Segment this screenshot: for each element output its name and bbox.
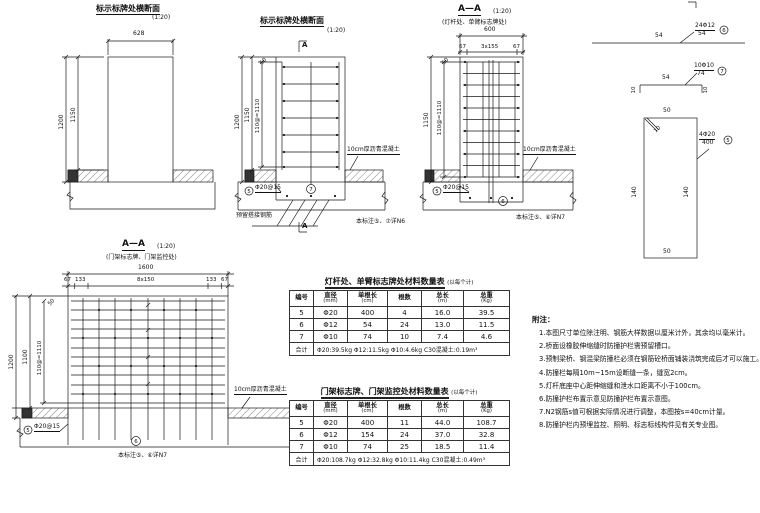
- callout-detail-n6: 6: [722, 28, 726, 34]
- col-header: 总重(Kg): [464, 291, 510, 307]
- d1-height-inner-dim: 1150: [71, 107, 78, 122]
- callout-bar6-d3: 6: [501, 199, 505, 205]
- d2-bar-spacing-dim: 110@=1110: [255, 99, 261, 134]
- cell: 6: [290, 429, 314, 441]
- n6-callout: 24Φ12 54: [695, 23, 715, 38]
- note-item: 3.预制梁桥、钢混梁防撞栏必须在钢筋砼桥面铺装浇筑完成后才可以施工。: [532, 353, 760, 366]
- cell: Φ12: [314, 429, 348, 441]
- table-unit-note: (以每个计): [451, 390, 477, 396]
- cell: 25: [388, 441, 422, 453]
- d4-ref-note: 本标注⑤、⑥详N7: [118, 453, 167, 460]
- table-row: 7Φ1074107.44.6: [290, 331, 510, 343]
- callout-bar6-d4: 6: [134, 439, 138, 445]
- n7-length-dim: 54: [662, 75, 670, 82]
- note-item: 5.灯杆底座中心距伸缩缝和泄水口距离不小于100cm。: [532, 380, 760, 393]
- cell: 13.0: [422, 319, 464, 331]
- footer-label: 合计: [290, 453, 314, 466]
- table-footer-row: 合计 Φ20:108.7kg Φ12:32.8kg Φ10:11.4kg C30…: [290, 453, 510, 466]
- callout-detail-n7: 7: [720, 69, 724, 75]
- qty-table-gantry: 门架标志牌、门架监控处材料数量表 (以每个计) 编号 直径(mm) 单根长(cm…: [289, 386, 509, 466]
- cell: 24: [388, 429, 422, 441]
- d1-width-dim: 628: [133, 31, 144, 38]
- d4-scale: (1:20): [157, 244, 175, 251]
- cell: 11.4: [464, 441, 510, 453]
- cell: Φ12: [314, 319, 348, 331]
- table-row: 6Φ121542437.032.8: [290, 429, 510, 441]
- d3-subtitle: (灯杆处、单臂标志牌处): [442, 20, 507, 27]
- n6-callout-bottom: 54: [695, 31, 715, 38]
- d3-scale: (1:20): [493, 9, 511, 16]
- col-header: 直径(mm): [314, 401, 348, 417]
- cell: 74: [348, 331, 388, 343]
- d1-title: 标示标牌处横断面: [96, 5, 160, 15]
- table-title: 门架标志牌、门架监控处材料数量表: [321, 387, 449, 399]
- d4-seg1-dim: 67: [64, 277, 71, 283]
- cell: 39.5: [464, 307, 510, 319]
- cell: Φ10: [314, 441, 348, 453]
- cell: 11: [388, 417, 422, 429]
- cell: 10: [388, 331, 422, 343]
- cell: 5: [290, 417, 314, 429]
- n5-right-dim: 140: [684, 186, 691, 197]
- col-header: 总长(m): [422, 291, 464, 307]
- d3-seg-mid-dim: 3x155: [481, 44, 498, 50]
- d2-section-mark-bottom: A: [302, 223, 307, 231]
- cell: Φ10: [314, 331, 348, 343]
- d4-subtitle: (门架标志牌、门架监控处): [106, 255, 177, 262]
- d1-scale: (1:20): [152, 15, 170, 22]
- drawing-sheet: 5 7 5 6 5 6 6 7 5 标示标牌处横断面 (1:20) 628 12…: [0, 0, 760, 513]
- note-item: 2.桥面设橡胶伸缩缝时防撞护栏需预留槽口。: [532, 340, 760, 353]
- note-item: 8.防撞护栏内预埋监控、照明、标志标线构件见有关专业图。: [532, 419, 760, 432]
- cell: 7.4: [422, 331, 464, 343]
- d3-pavement-label: 10cm厚沥青混凝土: [523, 147, 576, 155]
- d4-bar-spacing-dim: 110@=1110: [37, 341, 43, 376]
- d3-seg-right-dim: 67: [513, 44, 520, 50]
- n7-callout: 10Φ10 74: [694, 63, 714, 78]
- n7-hook-left-dim: 10: [631, 87, 637, 94]
- d4-rebar-label: Φ20@15: [34, 424, 60, 432]
- cell: Φ20: [314, 307, 348, 319]
- cell: 4.6: [464, 331, 510, 343]
- col-header: 总重(Kg): [464, 401, 510, 417]
- col-header: 根数: [388, 401, 422, 417]
- d4-seg2-dim: 133: [75, 277, 86, 283]
- table-unit-note: (以每个计): [447, 280, 473, 286]
- cell: 154: [348, 429, 388, 441]
- d4-title: A—A: [122, 240, 145, 251]
- cell: 5: [290, 307, 314, 319]
- n7-callout-bottom: 74: [694, 71, 714, 78]
- cell: 74: [348, 441, 388, 453]
- d2-ref-note: 本标注⑤、⑦详N6: [356, 219, 405, 226]
- table-footer-row: 合计 Φ20:39.5kg Φ12:11.5kg Φ10:4.6kg C30混凝…: [290, 343, 510, 356]
- d3-seg-left-dim: 67: [459, 44, 466, 50]
- n5-callout: 4Φ20 400: [699, 132, 715, 147]
- n5-bottom-dim: 50: [663, 249, 671, 256]
- cell: 37.0: [422, 429, 464, 441]
- notes-block: 附注： 1.本图尺寸单位除注明、钢筋大样数据以厘米计外，其余均以毫米计。 2.桥…: [532, 314, 760, 433]
- header-row: 编号 直径(mm) 单根长(cm) 根数 总长(m) 总重(Kg): [290, 401, 510, 417]
- n6-length-dim: 54: [655, 33, 663, 40]
- col-header: 单根长(cm): [348, 401, 388, 417]
- cell: 11.5: [464, 319, 510, 331]
- table-row: 5Φ204001144.0108.7: [290, 417, 510, 429]
- d3-height-inner-dim: 1150: [424, 112, 431, 127]
- note-item: 4.防撞栏每隔10m~15m设断缝一条，缝宽2cm。: [532, 367, 760, 380]
- callout-detail-n5: 5: [726, 138, 730, 144]
- cell: 32.8: [464, 429, 510, 441]
- d3-width-dim: 600: [484, 27, 495, 34]
- note-item: 6.防撞护栏布置示意见防撞护栏布置示意图。: [532, 393, 760, 406]
- table-row: 6Φ12542413.011.5: [290, 319, 510, 331]
- table-title: 灯杆处、单臂标志牌处材料数量表: [325, 277, 445, 289]
- callout-bar5-d4: 5: [26, 428, 30, 434]
- d2-title: 标示标牌处横断面: [260, 17, 324, 27]
- cell: 24: [388, 319, 422, 331]
- d2-pavement-label: 10cm厚沥青混凝土: [347, 147, 400, 155]
- n5-callout-bottom: 400: [699, 140, 715, 147]
- col-header: 单根长(cm): [348, 291, 388, 307]
- n5-top-dim: 50: [663, 108, 671, 115]
- callout-bar7-d2: 7: [309, 187, 313, 193]
- footer-total: Φ20:108.7kg Φ12:32.8kg Φ10:11.4kg C30混凝土…: [314, 453, 510, 466]
- header-row: 编号 直径(mm) 单根长(cm) 根数 总长(m) 总重(Kg): [290, 291, 510, 307]
- d3-title: A—A: [458, 5, 481, 16]
- table-row: 7Φ10742518.511.4: [290, 441, 510, 453]
- cell: 4: [388, 307, 422, 319]
- cell: Φ20: [314, 417, 348, 429]
- footer-label: 合计: [290, 343, 314, 356]
- cell: 108.7: [464, 417, 510, 429]
- d4-seg3-dim: 8x150: [137, 277, 154, 283]
- cell: 44.0: [422, 417, 464, 429]
- d3-rebar-label: Φ20@15: [443, 185, 469, 193]
- col-header: 根数: [388, 291, 422, 307]
- cell: 400: [348, 417, 388, 429]
- d4-width-dim: 1600: [138, 265, 153, 272]
- cell: 7: [290, 441, 314, 453]
- cell: 400: [348, 307, 388, 319]
- note-item: 7.N2钢筋s值可根据实际情况进行调整，本图按s=40cm计量。: [532, 406, 760, 419]
- d4-pavement-label: 10cm厚沥青混凝土: [234, 387, 287, 395]
- d4-height-mid-dim: 1100: [23, 349, 30, 364]
- notes-heading: 附注：: [532, 314, 760, 325]
- d3-bar-spacing-dim: 110@=1110: [437, 101, 443, 136]
- note-item: 1.本图尺寸单位除注明、钢筋大样数据以厘米计外，其余均以毫米计。: [532, 327, 760, 340]
- col-header: 总长(m): [422, 401, 464, 417]
- cell: 16.0: [422, 307, 464, 319]
- cell: 18.5: [422, 441, 464, 453]
- d4-seg5-dim: 67: [221, 277, 228, 283]
- col-header: 直径(mm): [314, 291, 348, 307]
- col-header: 编号: [290, 291, 314, 307]
- qty-table-gantry-title: 门架标志牌、门架监控处材料数量表 (以每个计): [289, 386, 509, 397]
- n7-hook-right-dim: 10: [703, 87, 709, 94]
- cell: 54: [348, 319, 388, 331]
- qty-table-light-pole: 灯杆处、单臂标志牌处材料数量表 (以每个计) 编号 直径(mm) 单根长(cm)…: [289, 276, 509, 356]
- d1-height-outer-dim: 1200: [59, 114, 66, 129]
- d2-dowel-label: 预留搭接钢筋: [236, 213, 272, 220]
- cell: 7: [290, 331, 314, 343]
- n5-left-dim: 140: [632, 186, 639, 197]
- d4-seg4-dim: 133: [206, 277, 217, 283]
- callout-bar5-d2: 5: [247, 189, 251, 195]
- d2-scale: (1:20): [327, 28, 345, 35]
- table-row: 5Φ20400416.039.5: [290, 307, 510, 319]
- d3-ref-note: 本标注⑤、⑥详N7: [516, 215, 565, 222]
- d2-height-outer-dim: 1200: [235, 114, 242, 129]
- d2-height-inner-dim: 1150: [245, 107, 252, 122]
- d4-height-outer-dim: 1200: [9, 354, 16, 369]
- qty-table-light-pole-title: 灯杆处、单臂标志牌处材料数量表 (以每个计): [289, 276, 509, 287]
- d2-rebar-label: Φ20@15: [255, 185, 281, 193]
- cell: 6: [290, 319, 314, 331]
- footer-total: Φ20:39.5kg Φ12:11.5kg Φ10:4.6kg C30混凝土:0…: [314, 343, 510, 356]
- callout-bar5-d3: 5: [435, 189, 439, 195]
- col-header: 编号: [290, 401, 314, 417]
- d2-section-mark-top: A: [302, 42, 307, 50]
